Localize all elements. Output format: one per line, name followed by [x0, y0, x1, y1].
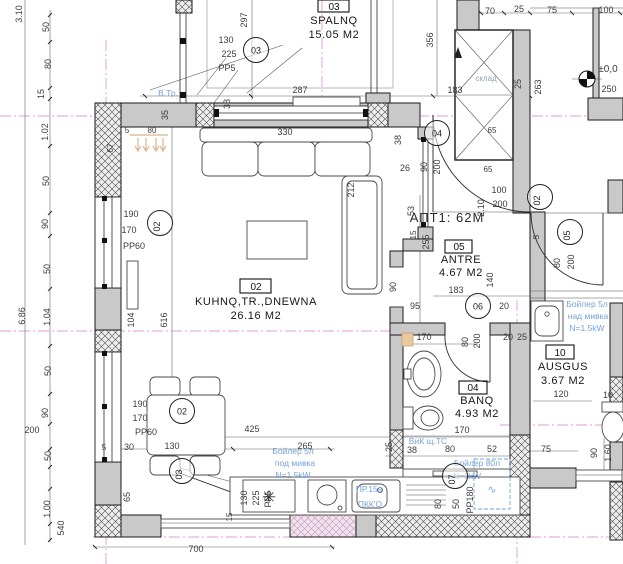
dimension-label: 6.86 [17, 307, 27, 325]
dimension-label: 140 [485, 272, 495, 287]
window-bedroom-east [371, 0, 377, 93]
dimension-label: 75 [541, 444, 551, 454]
dimension-label: 30 [124, 442, 134, 452]
annotation-note: N=1.5kW [569, 323, 604, 333]
dimension-label: 183 [447, 85, 462, 95]
marker-02: 02 [528, 185, 553, 210]
dimension-label: 3.10 [14, 5, 24, 23]
dimension-label: 1.02 [40, 123, 50, 141]
annotation-note: над мивка [568, 311, 609, 321]
ausgus-balcony-threshold [576, 470, 622, 481]
dimension-label: 75 [547, 5, 557, 15]
dimension-label: 67 [106, 143, 115, 152]
wall-left-pier [95, 288, 121, 330]
dimension-label: 255 [421, 234, 431, 249]
dimension-label: 90 [388, 282, 398, 292]
dimension-label: 170 [121, 225, 136, 235]
dimension-label: PP180 [465, 486, 475, 513]
dimension-label: 90 [40, 408, 50, 418]
room-title: 4.93 M2 [455, 408, 499, 420]
coffee-table [247, 221, 307, 259]
dimension-label: 104 [126, 312, 136, 327]
dimension-label: 616 [159, 312, 169, 327]
dimension-label: 200 [432, 159, 442, 174]
dimension-label: 130 [218, 35, 233, 45]
dimension-label: 540 [56, 520, 66, 535]
dimension-label: 80 [552, 258, 562, 268]
dimension-label: 80 [148, 126, 157, 135]
dimension-label: 5 [532, 234, 541, 239]
dimension-label: 25 [517, 332, 527, 342]
dimension-label: 10 [603, 390, 613, 400]
room-title: KUHNQ,TR.,DNEWNA [195, 296, 317, 308]
marker-number: 03 [251, 46, 261, 56]
window-top [214, 106, 368, 120]
dimension-label: 200 [472, 333, 482, 348]
wall-shaft-east [513, 30, 530, 213]
dimension-label: 5 [125, 126, 130, 135]
dimension-label: 130 [239, 490, 249, 505]
dimension-label: 25 [384, 442, 394, 452]
marker-number: 07 [447, 474, 457, 484]
marker-05: 05 [558, 220, 583, 245]
dimension-label: PP60 [135, 427, 157, 437]
dimension-label: 5 [102, 443, 107, 452]
annotation-note: под мивка [275, 458, 315, 468]
dimension-label: 50 [451, 499, 461, 509]
dimension-label: PP60 [123, 241, 145, 251]
room-title: 15.05 M2 [309, 29, 360, 41]
annotation-note: Бойлер 5л [272, 446, 314, 456]
marker-07: 07 [443, 464, 468, 489]
dimension-label: 190 [132, 399, 147, 409]
dimension-label: 356 [425, 32, 435, 47]
marker-03: 03 [170, 459, 195, 484]
wall-bath-west [390, 335, 403, 430]
marker-02: 02 [148, 211, 173, 236]
room-title: SPALNQ [310, 15, 357, 27]
dimension-label: 65 [484, 165, 493, 174]
dimension-label: 190 [123, 209, 138, 219]
room-title: 3.67 M2 [541, 375, 585, 387]
dimension-label: 38 [393, 135, 403, 145]
annotation-note: ПР.15в [356, 484, 383, 494]
window-bedroom-west [180, 13, 186, 103]
wall-bottom [121, 515, 161, 537]
annotation-note: N=1.5kW [275, 470, 310, 480]
dimension-label: 100 [491, 185, 506, 195]
dimension-label: 65 [488, 126, 497, 135]
room-number: 03 [328, 2, 340, 13]
dimension-label: 95 [410, 301, 420, 311]
dimension-label: 330 [277, 127, 292, 137]
dimension-label: склад [475, 74, 497, 83]
dimension-label: 15 [409, 230, 418, 239]
marker-number: 02 [177, 407, 187, 417]
room-title: 4.67 M2 [439, 267, 483, 279]
marker-number: 05 [562, 230, 572, 240]
dimension-label: 263 [533, 79, 543, 94]
room-number: 02 [250, 282, 262, 293]
room-label-antre: 05ANTRE4.67 M2 [439, 240, 483, 279]
marker-number: 03 [174, 469, 184, 479]
dimension-label: 65 [122, 492, 132, 502]
dimension-label: 1.60 [603, 444, 613, 462]
dimension-label: 170 [416, 332, 431, 342]
dimension-label: 80 [460, 337, 470, 347]
dimension-label: 50 [42, 264, 52, 274]
storage-shaft [454, 30, 513, 160]
bedroom-outline [207, 0, 393, 88]
dimension-label: 200 [24, 425, 39, 435]
dimension-label: 200 [566, 254, 576, 269]
dimension-label: 38 [407, 445, 417, 455]
floor-plan-page: ✳ ∿ [0, 0, 623, 564]
dimension-label: 425 [244, 424, 259, 434]
dimension-label: 100 [598, 5, 613, 15]
kitchen-counter: ✳ [230, 477, 520, 515]
wall-right-edge [608, 180, 623, 213]
dimension-label: 183 [448, 285, 463, 295]
window-left-upper [95, 196, 121, 289]
dimension-label: 52 [487, 444, 497, 454]
dimension-label: 38 [222, 99, 232, 109]
radiator-arrows-icon [130, 135, 168, 151]
dimension-label: 120 [553, 389, 568, 399]
apartment-label: АПТ1: 62М [410, 210, 485, 225]
corridor-sink [531, 301, 563, 341]
dimension-label: 250 [601, 84, 616, 94]
dimension-label: 90 [40, 219, 50, 229]
dimension-label: 25 [514, 4, 524, 14]
dimension-label: 225 [251, 490, 261, 505]
marker-number: 02 [532, 195, 542, 205]
room-number: 10 [554, 348, 566, 359]
room-label-kuhnq: 02KUHNQ,TR.,DNEWNA26.16 M2 [195, 279, 317, 322]
marker-number: 02 [152, 221, 162, 231]
marker-number: 06 [473, 302, 483, 312]
tv-panel [127, 261, 138, 309]
annotation-note: ПКК'О [358, 499, 383, 509]
bedroom-radiator [293, 97, 360, 106]
marker-06: 06 [466, 294, 491, 319]
sofa [200, 128, 382, 294]
wall-ausgus-south [530, 468, 576, 488]
wall-top [121, 103, 196, 127]
dimension-label: 200 [492, 199, 507, 209]
marker-number: 04 [432, 129, 442, 139]
annotation-note: ВиК щ.ТС [409, 436, 447, 446]
dimension-label: 225 [221, 49, 236, 59]
annotation-note: В.Тр. [158, 88, 178, 98]
dimension-label: 35 [160, 110, 170, 120]
wall-bedroom-west [176, 0, 192, 13]
room-title: AUSGUS [538, 361, 588, 373]
ausgus-toilet [602, 402, 623, 442]
dimension-label: 170 [454, 425, 469, 435]
dimension-label: 15 [225, 512, 234, 521]
boiler-wave-icon: ∿ [487, 484, 496, 496]
room-label-banq: 04BANQ4.93 M2 [455, 381, 499, 420]
dimension-label: 25 [513, 79, 523, 89]
dimension-label: 20 [503, 332, 513, 342]
annotation-note: Бойлер 5л [566, 299, 608, 309]
dimension-label: 90 [419, 162, 429, 172]
floor-plan-drawing: ✳ ∿ [0, 0, 623, 564]
dimension-label: 50 [43, 366, 53, 376]
toilet [403, 406, 443, 430]
dimension-label: 50 [43, 451, 53, 461]
dimension-label: 50 [41, 176, 51, 186]
marker-03: 03 [244, 38, 269, 63]
dimension-label: 212 [346, 182, 356, 197]
marker-04: 04 [425, 121, 450, 146]
wall-left-bottom [95, 462, 121, 505]
dimension-label: 1.00 [42, 500, 52, 518]
room-number: 05 [453, 242, 465, 253]
room-title: 26.16 M2 [231, 310, 282, 322]
dimension-label: 700 [188, 544, 203, 554]
room-number: 04 [467, 383, 479, 394]
dimension-label: 170 [132, 413, 147, 423]
bath-radiator [402, 333, 413, 346]
dimension-label: 20 [499, 301, 509, 311]
dimension-label: 15 [36, 89, 46, 99]
dimension-label: 287 [292, 85, 307, 95]
dimension-label: 80 [433, 499, 443, 509]
marker-02: 02 [170, 399, 195, 424]
dimension-label: 50 [41, 22, 51, 32]
bath-washbasin [404, 351, 441, 397]
dimension-label: 70 [485, 6, 495, 16]
room-label-ausgus: 10AUSGUS3.67 M2 [538, 345, 588, 387]
dimension-label: PP5 [263, 490, 273, 507]
dimension-label: 130 [164, 441, 179, 451]
room-title: ANTRE [441, 254, 481, 266]
dimension-label: 80 [43, 59, 53, 69]
dimension-label: 1.04 [42, 308, 52, 326]
room-title: BANQ [460, 395, 494, 407]
room-label-spalnq: 03SPALNQ15.05 M2 [309, 0, 360, 41]
wall-bedroom-east [366, 93, 390, 103]
window-left-lower [95, 351, 121, 462]
dimension-label: PP5 [218, 63, 235, 73]
dimension-label: ±0,0 [598, 64, 618, 75]
dimension-label: 90 [589, 448, 599, 458]
dimension-label: 297 [239, 12, 249, 27]
dimension-label: 26 [400, 163, 410, 173]
